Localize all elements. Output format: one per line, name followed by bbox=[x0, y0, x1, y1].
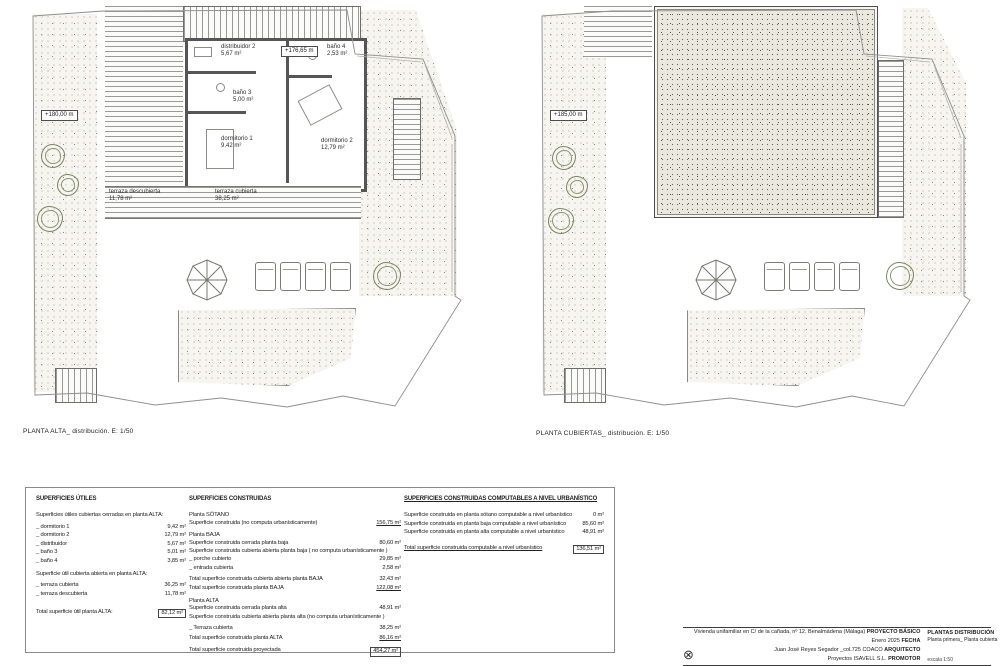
row-label: _ entrada cubierta bbox=[189, 565, 233, 573]
architect-line: Juan José Reyes Segador _col.725 COACO A… bbox=[694, 648, 921, 654]
room-name: baño 4 bbox=[327, 44, 347, 51]
pool-terrace bbox=[178, 308, 356, 386]
terrace-name: terraza cubierta bbox=[215, 189, 257, 196]
plan-caption: PLANTA ALTA_ distribución. E: 1/50 bbox=[23, 428, 134, 435]
table-row: Superficie construida cerrada planta alt… bbox=[189, 605, 401, 613]
row-label: _ dormitorio 1 bbox=[36, 524, 69, 532]
row-value: 86,16 m² bbox=[379, 635, 401, 643]
row-label: Superficie construida cerrada planta baj… bbox=[189, 540, 288, 548]
sun-lounger bbox=[330, 262, 351, 291]
plan-caption: PLANTA CUBIERTAS_ distribución. E: 1/50 bbox=[536, 430, 669, 437]
table-total-row: Total superficie útil planta ALTA:82,12 … bbox=[36, 609, 186, 619]
wall-horizontal-2 bbox=[188, 111, 246, 114]
plan-planta-cubiertas: +185,00 m PLANTA CUBIERTAS_ distribución… bbox=[534, 4, 992, 450]
room-name: distribuidor 2 bbox=[221, 44, 255, 51]
table-title: SUPERFICIES ÚTILES bbox=[36, 496, 186, 504]
promoter-tag: PROMOTOR bbox=[888, 656, 920, 662]
sun-lounger bbox=[280, 262, 301, 291]
area-tables: SUPERFICIES ÚTILES Superficies útiles cu… bbox=[25, 487, 615, 653]
level-marker: +180,00 m bbox=[41, 110, 78, 121]
table-total-row: Total superficie construida computable a… bbox=[404, 545, 604, 555]
row-label: _ baño 3 bbox=[36, 549, 57, 557]
room-area: 9,42 m² bbox=[221, 143, 253, 150]
row-value: 5,01 m² bbox=[167, 549, 186, 557]
row-label: Total superficie construida planta ALTA bbox=[189, 635, 283, 643]
table-row: Total superficie construida planta BAJA1… bbox=[189, 585, 401, 593]
table-row: Superficie construida cerrada planta baj… bbox=[189, 540, 401, 548]
row-label: Superficie construida en planta alta com… bbox=[404, 529, 564, 537]
promoter-line: Proyectos ISAVELL S.L. PROMOTOR bbox=[694, 657, 921, 663]
date-text: Enero 2025 bbox=[871, 638, 899, 644]
wood-deck-side bbox=[105, 6, 183, 186]
project-line: Vivienda unifamiliar en C/ de la cañada,… bbox=[694, 630, 921, 636]
exterior-stair-right bbox=[878, 60, 904, 218]
row-label: Total superficie construida cubierta abi… bbox=[189, 576, 323, 584]
total-value: 136,51 m² bbox=[573, 545, 604, 555]
table-row: _ Terraza cubierta38,25 m² bbox=[189, 625, 401, 633]
row-label: Total superficie construida planta BAJA bbox=[189, 585, 284, 593]
table-superficies-utiles: SUPERFICIES ÚTILES Superficies útiles cu… bbox=[36, 496, 186, 619]
room-label-dormitorio2: dormitorio 2 12,79 m² bbox=[321, 138, 353, 152]
sun-lounger bbox=[305, 262, 326, 291]
garden-left-strip bbox=[542, 14, 606, 392]
sheet-subtitle: Planta primera_ Planta cubierta bbox=[927, 637, 997, 643]
total-label: Total superficie construida computable a… bbox=[404, 545, 542, 555]
table-row: _ distribuidor5,67 m² bbox=[36, 541, 186, 549]
table-row: _ terraza cubierta36,25 m² bbox=[36, 582, 186, 590]
date-tag: FECHA bbox=[901, 638, 920, 644]
wall-horizontal-1 bbox=[188, 71, 256, 74]
terrace-name: terraza descubierta bbox=[109, 189, 160, 196]
room-area: 5,00 m² bbox=[233, 97, 253, 104]
row-label: _ distribuidor bbox=[36, 541, 67, 549]
row-label: Superficie construida en planta sótano c… bbox=[404, 512, 572, 520]
row-value: 48,91 m² bbox=[379, 605, 401, 613]
row-value: 3,85 m² bbox=[167, 558, 186, 566]
roof-plan bbox=[654, 6, 878, 218]
garden-right bbox=[902, 8, 966, 296]
row-value: 9,42 m² bbox=[167, 524, 186, 532]
row-label: Superficie construida cerrada planta alt… bbox=[189, 605, 287, 613]
parasol-icon bbox=[185, 258, 229, 302]
row-value: 2,58 m² bbox=[382, 565, 401, 573]
promoter-text: Proyectos ISAVELL S.L. bbox=[828, 656, 887, 662]
row-value: 0 m² bbox=[593, 512, 604, 520]
table-row: _ terraza descubierta11,78 m² bbox=[36, 591, 186, 599]
table-superficies-construidas: SUPERFICIES CONSTRUIDAS Planta SÓTANO Su… bbox=[189, 496, 401, 658]
plan-planta-alta: +180,00 m +176,65 m distribuidor 2 5,67 … bbox=[25, 4, 483, 450]
row-value: 29,85 m² bbox=[379, 556, 401, 564]
row-value: 5,67 m² bbox=[167, 541, 186, 549]
row-label: _ baño 4 bbox=[36, 558, 57, 566]
title-block-project-info: Vivienda unifamiliar en C/ de la cañada,… bbox=[694, 628, 925, 665]
sheet-scale: escala 1:50 bbox=[927, 657, 997, 663]
label-terraza-descubierta: terraza descubierta 11,78 m² bbox=[109, 189, 160, 203]
row-value: 12,79 m² bbox=[164, 532, 186, 540]
floor-level-marker: +176,65 m bbox=[281, 46, 318, 57]
table-row: Superficie construida en planta sótano c… bbox=[404, 512, 604, 520]
bed-dormitorio-2 bbox=[298, 84, 343, 126]
title-block: ⊗ Vivienda unifamiliar en C/ de la cañad… bbox=[683, 627, 991, 666]
row-value: 11,78 m² bbox=[165, 591, 186, 599]
table-row: _ baño 35,01 m² bbox=[36, 549, 186, 557]
sun-lounger bbox=[789, 262, 810, 291]
table-subhead: Planta SÓTANO bbox=[189, 512, 401, 520]
total-label: Total superficie construida proyectada bbox=[189, 647, 281, 657]
total-label: Total superficie útil planta ALTA: bbox=[36, 609, 113, 619]
row-value: 85,60 m² bbox=[582, 521, 604, 529]
room-name: dormitorio 1 bbox=[221, 136, 253, 143]
upper-stair-band bbox=[183, 6, 361, 42]
row-label: _ terraza cubierta bbox=[36, 582, 78, 590]
row-label: Superficie construida (no computa urbaní… bbox=[189, 520, 317, 528]
room-label-bano3: baño 3 5,00 m² bbox=[233, 90, 253, 104]
exterior-stair-right bbox=[393, 98, 421, 180]
table-row: _ baño 43,85 m² bbox=[36, 558, 186, 566]
sink-counter bbox=[194, 47, 212, 57]
table-row: Superficie construida en planta alta com… bbox=[404, 529, 604, 537]
row-label: _ terraza descubierta bbox=[36, 591, 87, 599]
table-subhead: Superficie construida cubierta abierta p… bbox=[189, 614, 401, 622]
room-area: 2,53 m² bbox=[327, 51, 347, 58]
table-computables: SUPERFICIES CONSTRUIDAS COMPUTABLES A NI… bbox=[404, 496, 604, 555]
room-area: 5,67 m² bbox=[221, 51, 255, 58]
sun-lounger bbox=[764, 262, 785, 291]
parasol-icon bbox=[694, 258, 738, 302]
total-value: 454,27 m² bbox=[370, 647, 401, 657]
pool-terrace bbox=[687, 308, 865, 386]
row-value: 48,91 m² bbox=[582, 529, 604, 537]
garden-left-strip bbox=[33, 14, 97, 392]
table-subtitle: Superficie útil cubierta abierta en plan… bbox=[36, 571, 186, 579]
architect-tag: ARQUITECTO bbox=[884, 647, 920, 653]
table-row: Superficie construida (no computa urbaní… bbox=[189, 520, 401, 528]
sun-lounger bbox=[814, 262, 835, 291]
wc-bano-3 bbox=[216, 83, 225, 92]
room-label-distribuidor: distribuidor 2 5,67 m² bbox=[221, 44, 255, 58]
room-area: 12,79 m² bbox=[321, 145, 353, 152]
room-name: dormitorio 2 bbox=[321, 138, 353, 145]
room-label-dormitorio1: dormitorio 1 9,42 m² bbox=[221, 136, 253, 150]
row-value: 32,43 m² bbox=[379, 576, 401, 584]
table-total-row: Total superficie construida proyectada45… bbox=[189, 647, 401, 657]
table-subhead: Superficie construida cubierta abierta p… bbox=[189, 548, 401, 556]
sheet-title-cell: PLANTAS DISTRIBUCIÓN Planta primera_ Pla… bbox=[924, 628, 1000, 665]
wood-deck-corner bbox=[584, 6, 652, 58]
sheet-title: PLANTAS DISTRIBUCIÓN bbox=[927, 630, 997, 636]
exterior-stair-bottom bbox=[55, 368, 97, 403]
table-row: _ porche cubierto29,85 m² bbox=[189, 556, 401, 564]
table-subhead: Planta BAJA bbox=[189, 532, 401, 540]
row-value: 38,25 m² bbox=[379, 625, 401, 633]
sun-lounger bbox=[839, 262, 860, 291]
row-label: _ porche cubierto bbox=[189, 556, 231, 564]
row-label: Superficie construida en planta baja com… bbox=[404, 521, 566, 529]
terrace-area: 38,25 m² bbox=[215, 196, 257, 203]
row-value: 156,75 m² bbox=[376, 520, 401, 528]
project-text: Vivienda unifamiliar en C/ de la cañada,… bbox=[694, 629, 865, 635]
row-label: _ dormitorio 2 bbox=[36, 532, 69, 540]
total-value: 82,12 m² bbox=[158, 609, 186, 619]
terrace-area: 11,78 m² bbox=[109, 196, 160, 203]
table-row: Total superficie construida planta ALTA8… bbox=[189, 635, 401, 643]
table-title: SUPERFICIES CONSTRUIDAS COMPUTABLES A NI… bbox=[404, 496, 604, 504]
room-name: baño 3 bbox=[233, 90, 253, 97]
room-label-bano4: baño 4 2,53 m² bbox=[327, 44, 347, 58]
wall-vertical bbox=[286, 41, 289, 183]
exterior-stair-bottom bbox=[564, 368, 606, 403]
sun-lounger bbox=[255, 262, 276, 291]
table-row: Total superficie construida cubierta abi… bbox=[189, 576, 401, 584]
table-title: SUPERFICIES CONSTRUIDAS bbox=[189, 496, 401, 504]
row-label: _ Terraza cubierta bbox=[189, 625, 233, 633]
wall-horizontal-3 bbox=[286, 75, 332, 78]
project-tag: PROYECTO BÁSICO bbox=[867, 629, 921, 635]
date-line: Enero 2025 FECHA bbox=[694, 639, 921, 645]
north-arrow-icon: ⊗ bbox=[683, 628, 694, 665]
table-row: _ dormitorio 19,42 m² bbox=[36, 524, 186, 532]
row-value: 80,60 m² bbox=[379, 540, 401, 548]
level-marker: +185,00 m bbox=[550, 110, 587, 121]
house-floorplan bbox=[185, 38, 367, 192]
table-row: _ entrada cubierta2,58 m² bbox=[189, 565, 401, 573]
row-value: 36,25 m² bbox=[164, 582, 186, 590]
table-row: _ dormitorio 212,79 m² bbox=[36, 532, 186, 540]
row-value: 122,08 m² bbox=[376, 585, 401, 593]
table-subhead: Planta ALTA bbox=[189, 598, 401, 606]
table-row: Superficie construida en planta baja com… bbox=[404, 521, 604, 529]
drawing-sheet: +180,00 m +176,65 m distribuidor 2 5,67 … bbox=[0, 0, 1000, 666]
table-subtitle: Superficies útiles cubiertas cerradas en… bbox=[36, 512, 186, 520]
architect-text: Juan José Reyes Segador _col.725 COACO bbox=[774, 647, 883, 653]
label-terraza-cubierta: terraza cubierta 38,25 m² bbox=[215, 189, 257, 203]
